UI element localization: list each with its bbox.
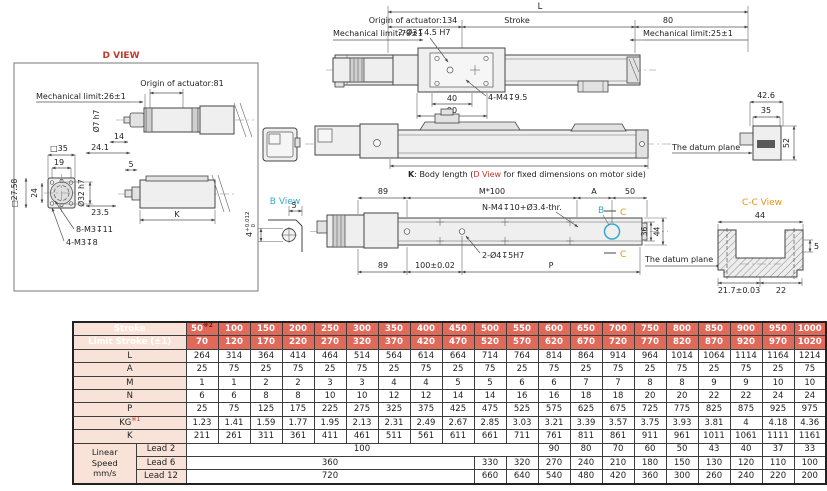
k-body-length-caption: K: Body length (D View for fixed dimensi… <box>408 170 646 179</box>
value-cell: 961 <box>666 430 698 443</box>
header-cell: 350 <box>378 322 410 336</box>
header-cell: 70 <box>186 336 218 349</box>
header-cell: 1020 <box>794 336 826 349</box>
value-cell: 25 <box>762 363 794 376</box>
datum-plane-label-upper: The datum plane <box>671 143 740 152</box>
value-cell: 1011 <box>698 430 730 443</box>
dim-35: 35 <box>761 106 771 115</box>
value-cell: 3.57 <box>602 416 634 429</box>
value-cell: 18 <box>570 389 602 402</box>
value-cell: 914 <box>602 349 634 362</box>
value-cell: 150 <box>666 456 698 469</box>
header-cell: 800 <box>666 322 698 336</box>
value-cell: 75 <box>730 363 762 376</box>
value-cell: 14 <box>442 389 474 402</box>
value-cell: 311 <box>250 430 282 443</box>
value-cell: 375 <box>410 403 442 416</box>
value-cell: 2 <box>282 376 314 389</box>
row-label-cell: N <box>73 389 186 402</box>
dim-sq35: □35 <box>50 144 68 153</box>
table-row: Lead 12720660640540480420360300260240220… <box>73 470 826 484</box>
row-label-cell: Lead 6 <box>136 456 186 469</box>
b-view-tolerance: 4+0.0120 <box>245 212 257 237</box>
value-cell: 8 <box>666 376 698 389</box>
value-cell: 325 <box>378 403 410 416</box>
value-cell: 2 <box>250 376 282 389</box>
stroke-label: Stroke <box>504 16 530 25</box>
cc-section-profile <box>718 230 803 277</box>
dim-24: 24 <box>30 188 39 198</box>
value-cell: 40 <box>730 443 762 456</box>
table-row: KG※11.231.411.591.771.952.132.312.492.67… <box>73 416 826 429</box>
dim-52: 52 <box>782 138 791 148</box>
header-cell: 1000 <box>794 322 826 336</box>
value-cell: 120 <box>730 456 762 469</box>
header-cell: 820 <box>666 336 698 349</box>
value-cell: 411 <box>314 430 346 443</box>
origin-of-actuator-label: Origin of actuator:134 <box>369 16 458 25</box>
value-cell: 60 <box>634 443 666 456</box>
cc-dim-44: 44 <box>755 211 765 220</box>
value-cell: 3 <box>314 376 346 389</box>
header-cell: 450 <box>442 322 474 336</box>
d-view: D VIEW Origin of actuator:81 Mechanical … <box>10 51 258 291</box>
value-cell: 1161 <box>794 430 826 443</box>
table-row: A257525752575257525752575257525752575257… <box>73 363 826 376</box>
b-view-dim-5: 5 <box>291 201 296 210</box>
header-cell: 900 <box>730 322 762 336</box>
value-cell: 564 <box>378 349 410 362</box>
dim-24-1: 24.1 <box>91 143 109 152</box>
value-cell: 6 <box>506 376 538 389</box>
header-cell: Stroke <box>73 322 186 336</box>
value-cell: 12 <box>410 389 442 402</box>
value-cell: 514 <box>346 349 378 362</box>
header-cell: 200 <box>282 322 314 336</box>
header-cell: Limit Stroke (±1) <box>73 336 186 349</box>
value-cell: 360 <box>186 456 474 469</box>
value-cell: 210 <box>602 456 634 469</box>
header-cell: 570 <box>506 336 538 349</box>
value-cell: 2.49 <box>410 416 442 429</box>
table-row: M1122334455667788991010 <box>73 376 826 389</box>
value-cell: 2.31 <box>378 416 410 429</box>
dim-40: 40 <box>447 94 457 103</box>
value-cell: 3.39 <box>570 416 602 429</box>
header-cell: 950 <box>762 322 794 336</box>
dim-44: 44 <box>653 227 662 237</box>
value-cell: 25 <box>378 363 410 376</box>
dim-36: 36 <box>640 227 649 237</box>
header-cell: 670 <box>570 336 602 349</box>
table-row: LinearSpeedmm/sLead 21009080706050434037… <box>73 443 826 456</box>
value-cell: 414 <box>282 349 314 362</box>
c-marker-bottom: C <box>620 250 626 260</box>
value-cell: 130 <box>698 456 730 469</box>
value-cell: 300 <box>666 470 698 484</box>
row-label-cell: P <box>73 403 186 416</box>
dim-19: 19 <box>54 158 64 167</box>
value-cell: 661 <box>474 430 506 443</box>
top-threads-label: 4-M4↧9.5 <box>488 93 527 102</box>
bottom-holes-label: 2-Ø4↧5H7 <box>482 250 524 260</box>
value-cell: 125 <box>250 403 282 416</box>
d-view-origin-label: Origin of actuator:81 <box>140 79 223 88</box>
value-cell: 220 <box>762 470 794 484</box>
value-cell: 330 <box>474 456 506 469</box>
value-cell: 1064 <box>698 349 730 362</box>
value-cell: 25 <box>186 403 218 416</box>
value-cell: 611 <box>442 430 474 443</box>
value-cell: 614 <box>410 349 442 362</box>
value-cell: 20 <box>666 389 698 402</box>
value-cell: 664 <box>442 349 474 362</box>
dim-100: 100±0.02 <box>415 261 455 270</box>
dim-89-bottom: 89 <box>378 261 388 270</box>
value-cell: 6 <box>218 389 250 402</box>
value-cell: 540 <box>538 470 570 484</box>
value-cell: 1.41 <box>218 416 250 429</box>
value-cell: 25 <box>250 363 282 376</box>
value-cell: 10 <box>314 389 346 402</box>
shaft-diameter-label: Ø7 h7 <box>92 109 101 132</box>
value-cell: 5 <box>474 376 506 389</box>
value-cell: 761 <box>538 430 570 443</box>
value-cell: 8 <box>634 376 666 389</box>
linear-speed-group-label: LinearSpeedmm/s <box>73 443 136 484</box>
value-cell: 100 <box>186 443 538 456</box>
header-cell: 720 <box>602 336 634 349</box>
table-row: N668810101212141416161818202022222424 <box>73 389 826 402</box>
cc-view: C-C View 44 5 21.7±0.03 22 <box>718 198 819 295</box>
value-cell: 75 <box>474 363 506 376</box>
value-cell: 640 <box>506 470 538 484</box>
value-cell: 75 <box>410 363 442 376</box>
n-threads-label: N-M4↧10+Ø3.4-thr. <box>482 202 562 212</box>
value-cell: 110 <box>762 456 794 469</box>
header-cell: 50※2 <box>186 322 218 336</box>
value-cell: 80 <box>570 443 602 456</box>
d-view-mech-limit-label: Mechanical limit:26±1 <box>36 92 126 101</box>
value-cell: 1111 <box>762 430 794 443</box>
header-cell: 470 <box>442 336 474 349</box>
value-cell: 25 <box>506 363 538 376</box>
value-cell: 2.67 <box>442 416 474 429</box>
table-row: Stroke50※2100150200250300350400450500550… <box>73 322 826 336</box>
value-cell: 561 <box>410 430 442 443</box>
top-view: L Origin of actuator:134 Stroke 80 Mecha… <box>326 2 748 119</box>
value-cell: 361 <box>282 430 314 443</box>
front-view: K: Body length (D View for fixed dimensi… <box>263 91 797 179</box>
value-cell: 1.59 <box>250 416 282 429</box>
value-cell: 714 <box>474 349 506 362</box>
table-row: K211261311361411461511561611661711761811… <box>73 430 826 443</box>
value-cell: 725 <box>634 403 666 416</box>
header-cell: 620 <box>538 336 570 349</box>
dim-sq27-58: □27.58 <box>10 178 19 207</box>
value-cell: 25 <box>634 363 666 376</box>
row-label-cell: L <box>73 349 186 362</box>
header-cell: 100 <box>218 322 250 336</box>
value-cell: 22 <box>730 389 762 402</box>
value-cell: 75 <box>282 363 314 376</box>
header-cell: 920 <box>730 336 762 349</box>
header-cell: 250 <box>314 322 346 336</box>
value-cell: 9 <box>730 376 762 389</box>
value-cell: 625 <box>570 403 602 416</box>
value-cell: 3.75 <box>634 416 666 429</box>
value-cell: 420 <box>602 470 634 484</box>
value-cell: 7 <box>602 376 634 389</box>
value-cell: 264 <box>186 349 218 362</box>
value-cell: 75 <box>602 363 634 376</box>
value-cell: 25 <box>442 363 474 376</box>
value-cell: 25 <box>698 363 730 376</box>
dim-80: 80 <box>663 16 673 25</box>
value-cell: 16 <box>538 389 570 402</box>
dim-p: P <box>549 261 554 270</box>
value-cell: 475 <box>474 403 506 416</box>
header-cell: 320 <box>346 336 378 349</box>
value-cell: 8 <box>250 389 282 402</box>
row-label-cell: KG※1 <box>73 416 186 429</box>
value-cell: 260 <box>698 470 730 484</box>
value-cell: 320 <box>506 456 538 469</box>
dim-k: K <box>174 210 180 219</box>
value-cell: 25 <box>186 363 218 376</box>
value-cell: 6 <box>186 389 218 402</box>
b-marker: B <box>598 206 604 216</box>
cc-dim-5: 5 <box>814 242 819 251</box>
row-label-cell: M <box>73 376 186 389</box>
top-holes-label: 2-Ø3↧4.5 H7 <box>398 27 450 37</box>
header-cell: 500 <box>474 322 506 336</box>
value-cell: 2.13 <box>346 416 378 429</box>
value-cell: 261 <box>218 430 250 443</box>
value-cell: 575 <box>538 403 570 416</box>
header-cell: 750 <box>634 322 666 336</box>
value-cell: 825 <box>698 403 730 416</box>
value-cell: 75 <box>666 363 698 376</box>
header-cell: 220 <box>282 336 314 349</box>
header-cell: 850 <box>698 322 730 336</box>
cc-dim-22: 22 <box>776 286 786 295</box>
value-cell: 100 <box>794 456 826 469</box>
value-cell: 275 <box>346 403 378 416</box>
table-row: L264314364414464514564614664714764814864… <box>73 349 826 362</box>
cc-dim-21-7: 21.7±0.03 <box>718 286 760 295</box>
table-row: Limit Stroke (±1)70120170220270320370420… <box>73 336 826 349</box>
value-cell: 33 <box>794 443 826 456</box>
row-label-cell: Lead 12 <box>136 470 186 484</box>
value-cell: 75 <box>346 363 378 376</box>
spec-table: Stroke50※2100150200250300350400450500550… <box>72 321 827 485</box>
value-cell: 9 <box>698 376 730 389</box>
value-cell: 3.93 <box>666 416 698 429</box>
header-cell: 420 <box>410 336 442 349</box>
value-cell: 7 <box>570 376 602 389</box>
value-cell: 1.77 <box>282 416 314 429</box>
value-cell: 360 <box>634 470 666 484</box>
bottom-view: B View 5 4+0.0120 <box>245 187 720 275</box>
value-cell: 3.81 <box>698 416 730 429</box>
value-cell: 200 <box>794 470 826 484</box>
value-cell: 16 <box>506 389 538 402</box>
value-cell: 1061 <box>730 430 762 443</box>
thread-8-m3-label: 8-M3↧11 <box>76 225 113 234</box>
value-cell: 75 <box>218 403 250 416</box>
value-cell: 525 <box>506 403 538 416</box>
table-row: Lead 63603303202702402101801501301201101… <box>73 456 826 469</box>
dim-14: 14 <box>114 132 124 141</box>
value-cell: 70 <box>602 443 634 456</box>
header-cell: 370 <box>378 336 410 349</box>
dim-dia32: Ø32 h7 <box>77 179 86 207</box>
value-cell: 814 <box>538 349 570 362</box>
value-cell: 675 <box>602 403 634 416</box>
value-cell: 764 <box>506 349 538 362</box>
value-cell: 25 <box>314 363 346 376</box>
value-cell: 211 <box>186 430 218 443</box>
table-row: P257512517522527532537542547552557562567… <box>73 403 826 416</box>
value-cell: 1014 <box>666 349 698 362</box>
dim-50: 50 <box>625 187 635 196</box>
value-cell: 10 <box>346 389 378 402</box>
value-cell: 1 <box>218 376 250 389</box>
value-cell: 225 <box>314 403 346 416</box>
value-cell: 964 <box>634 349 666 362</box>
value-cell: 3.21 <box>538 416 570 429</box>
value-cell: 50 <box>666 443 698 456</box>
dim-m100: M*100 <box>479 187 505 196</box>
header-cell: 300 <box>346 322 378 336</box>
dim-23-5: 23.5 <box>91 208 109 217</box>
value-cell: 75 <box>538 363 570 376</box>
value-cell: 1164 <box>762 349 794 362</box>
value-cell: 864 <box>570 349 602 362</box>
value-cell: 875 <box>730 403 762 416</box>
value-cell: 720 <box>186 470 474 484</box>
value-cell: 175 <box>282 403 314 416</box>
value-cell: 314 <box>218 349 250 362</box>
dim-5: 5 <box>128 160 133 169</box>
header-cell: 970 <box>762 336 794 349</box>
value-cell: 711 <box>506 430 538 443</box>
value-cell: 775 <box>666 403 698 416</box>
header-cell: 550 <box>506 322 538 336</box>
row-label-cell: Lead 2 <box>136 443 186 456</box>
value-cell: 37 <box>762 443 794 456</box>
value-cell: 425 <box>442 403 474 416</box>
value-cell: 240 <box>730 470 762 484</box>
dim-l: L <box>538 2 543 12</box>
thread-4-m3-label: 4-M3↧8 <box>66 238 98 247</box>
c-marker-top: C <box>620 208 626 218</box>
value-cell: 1214 <box>794 349 826 362</box>
value-cell: 24 <box>762 389 794 402</box>
value-cell: 4 <box>378 376 410 389</box>
header-cell: 600 <box>538 322 570 336</box>
value-cell: 90 <box>538 443 570 456</box>
header-cell: 650 <box>570 322 602 336</box>
value-cell: 4 <box>730 416 762 429</box>
row-label-cell: A <box>73 363 186 376</box>
value-cell: 10 <box>762 376 794 389</box>
value-cell: 461 <box>346 430 378 443</box>
value-cell: 364 <box>250 349 282 362</box>
header-cell: 170 <box>250 336 282 349</box>
value-cell: 3.03 <box>506 416 538 429</box>
value-cell: 75 <box>794 363 826 376</box>
value-cell: 4 <box>410 376 442 389</box>
d-view-title: D VIEW <box>103 51 140 61</box>
value-cell: 1.95 <box>314 416 346 429</box>
header-cell: 270 <box>314 336 346 349</box>
value-cell: 975 <box>794 403 826 416</box>
value-cell: 861 <box>602 430 634 443</box>
value-cell: 14 <box>474 389 506 402</box>
value-cell: 3 <box>346 376 378 389</box>
value-cell: 25 <box>570 363 602 376</box>
value-cell: 8 <box>282 389 314 402</box>
value-cell: 75 <box>218 363 250 376</box>
value-cell: 180 <box>634 456 666 469</box>
value-cell: 464 <box>314 349 346 362</box>
value-cell: 20 <box>634 389 666 402</box>
header-cell: 120 <box>218 336 250 349</box>
value-cell: 1 <box>186 376 218 389</box>
header-cell: 400 <box>410 322 442 336</box>
value-cell: 2.85 <box>474 416 506 429</box>
value-cell: 811 <box>570 430 602 443</box>
datum-plane-label-lower: The datum plane <box>644 255 713 264</box>
header-cell: 520 <box>474 336 506 349</box>
header-cell: 870 <box>698 336 730 349</box>
value-cell: 43 <box>698 443 730 456</box>
value-cell: 270 <box>538 456 570 469</box>
value-cell: 511 <box>378 430 410 443</box>
value-cell: 12 <box>378 389 410 402</box>
value-cell: 4.36 <box>794 416 826 429</box>
dim-89-top: 89 <box>378 187 388 196</box>
value-cell: 911 <box>634 430 666 443</box>
dim-42-6: 42.6 <box>757 91 775 100</box>
value-cell: 1114 <box>730 349 762 362</box>
dim-a: A <box>591 187 597 196</box>
mech-limit-right-label: Mechanical limit:25±1 <box>643 29 733 38</box>
header-cell: 150 <box>250 322 282 336</box>
value-cell: 480 <box>570 470 602 484</box>
value-cell: 240 <box>570 456 602 469</box>
value-cell: 660 <box>474 470 506 484</box>
value-cell: 925 <box>762 403 794 416</box>
technical-drawing: D VIEW Origin of actuator:81 Mechanical … <box>0 0 827 315</box>
value-cell: 6 <box>538 376 570 389</box>
value-cell: 22 <box>698 389 730 402</box>
header-cell: 770 <box>634 336 666 349</box>
datasheet-page: D VIEW Origin of actuator:81 Mechanical … <box>0 0 827 491</box>
value-cell: 5 <box>442 376 474 389</box>
cc-view-title: C-C View <box>742 198 782 208</box>
value-cell: 24 <box>794 389 826 402</box>
header-cell: 700 <box>602 322 634 336</box>
row-label-cell: K <box>73 430 186 443</box>
value-cell: 10 <box>794 376 826 389</box>
value-cell: 4.18 <box>762 416 794 429</box>
value-cell: 1.23 <box>186 416 218 429</box>
value-cell: 18 <box>602 389 634 402</box>
